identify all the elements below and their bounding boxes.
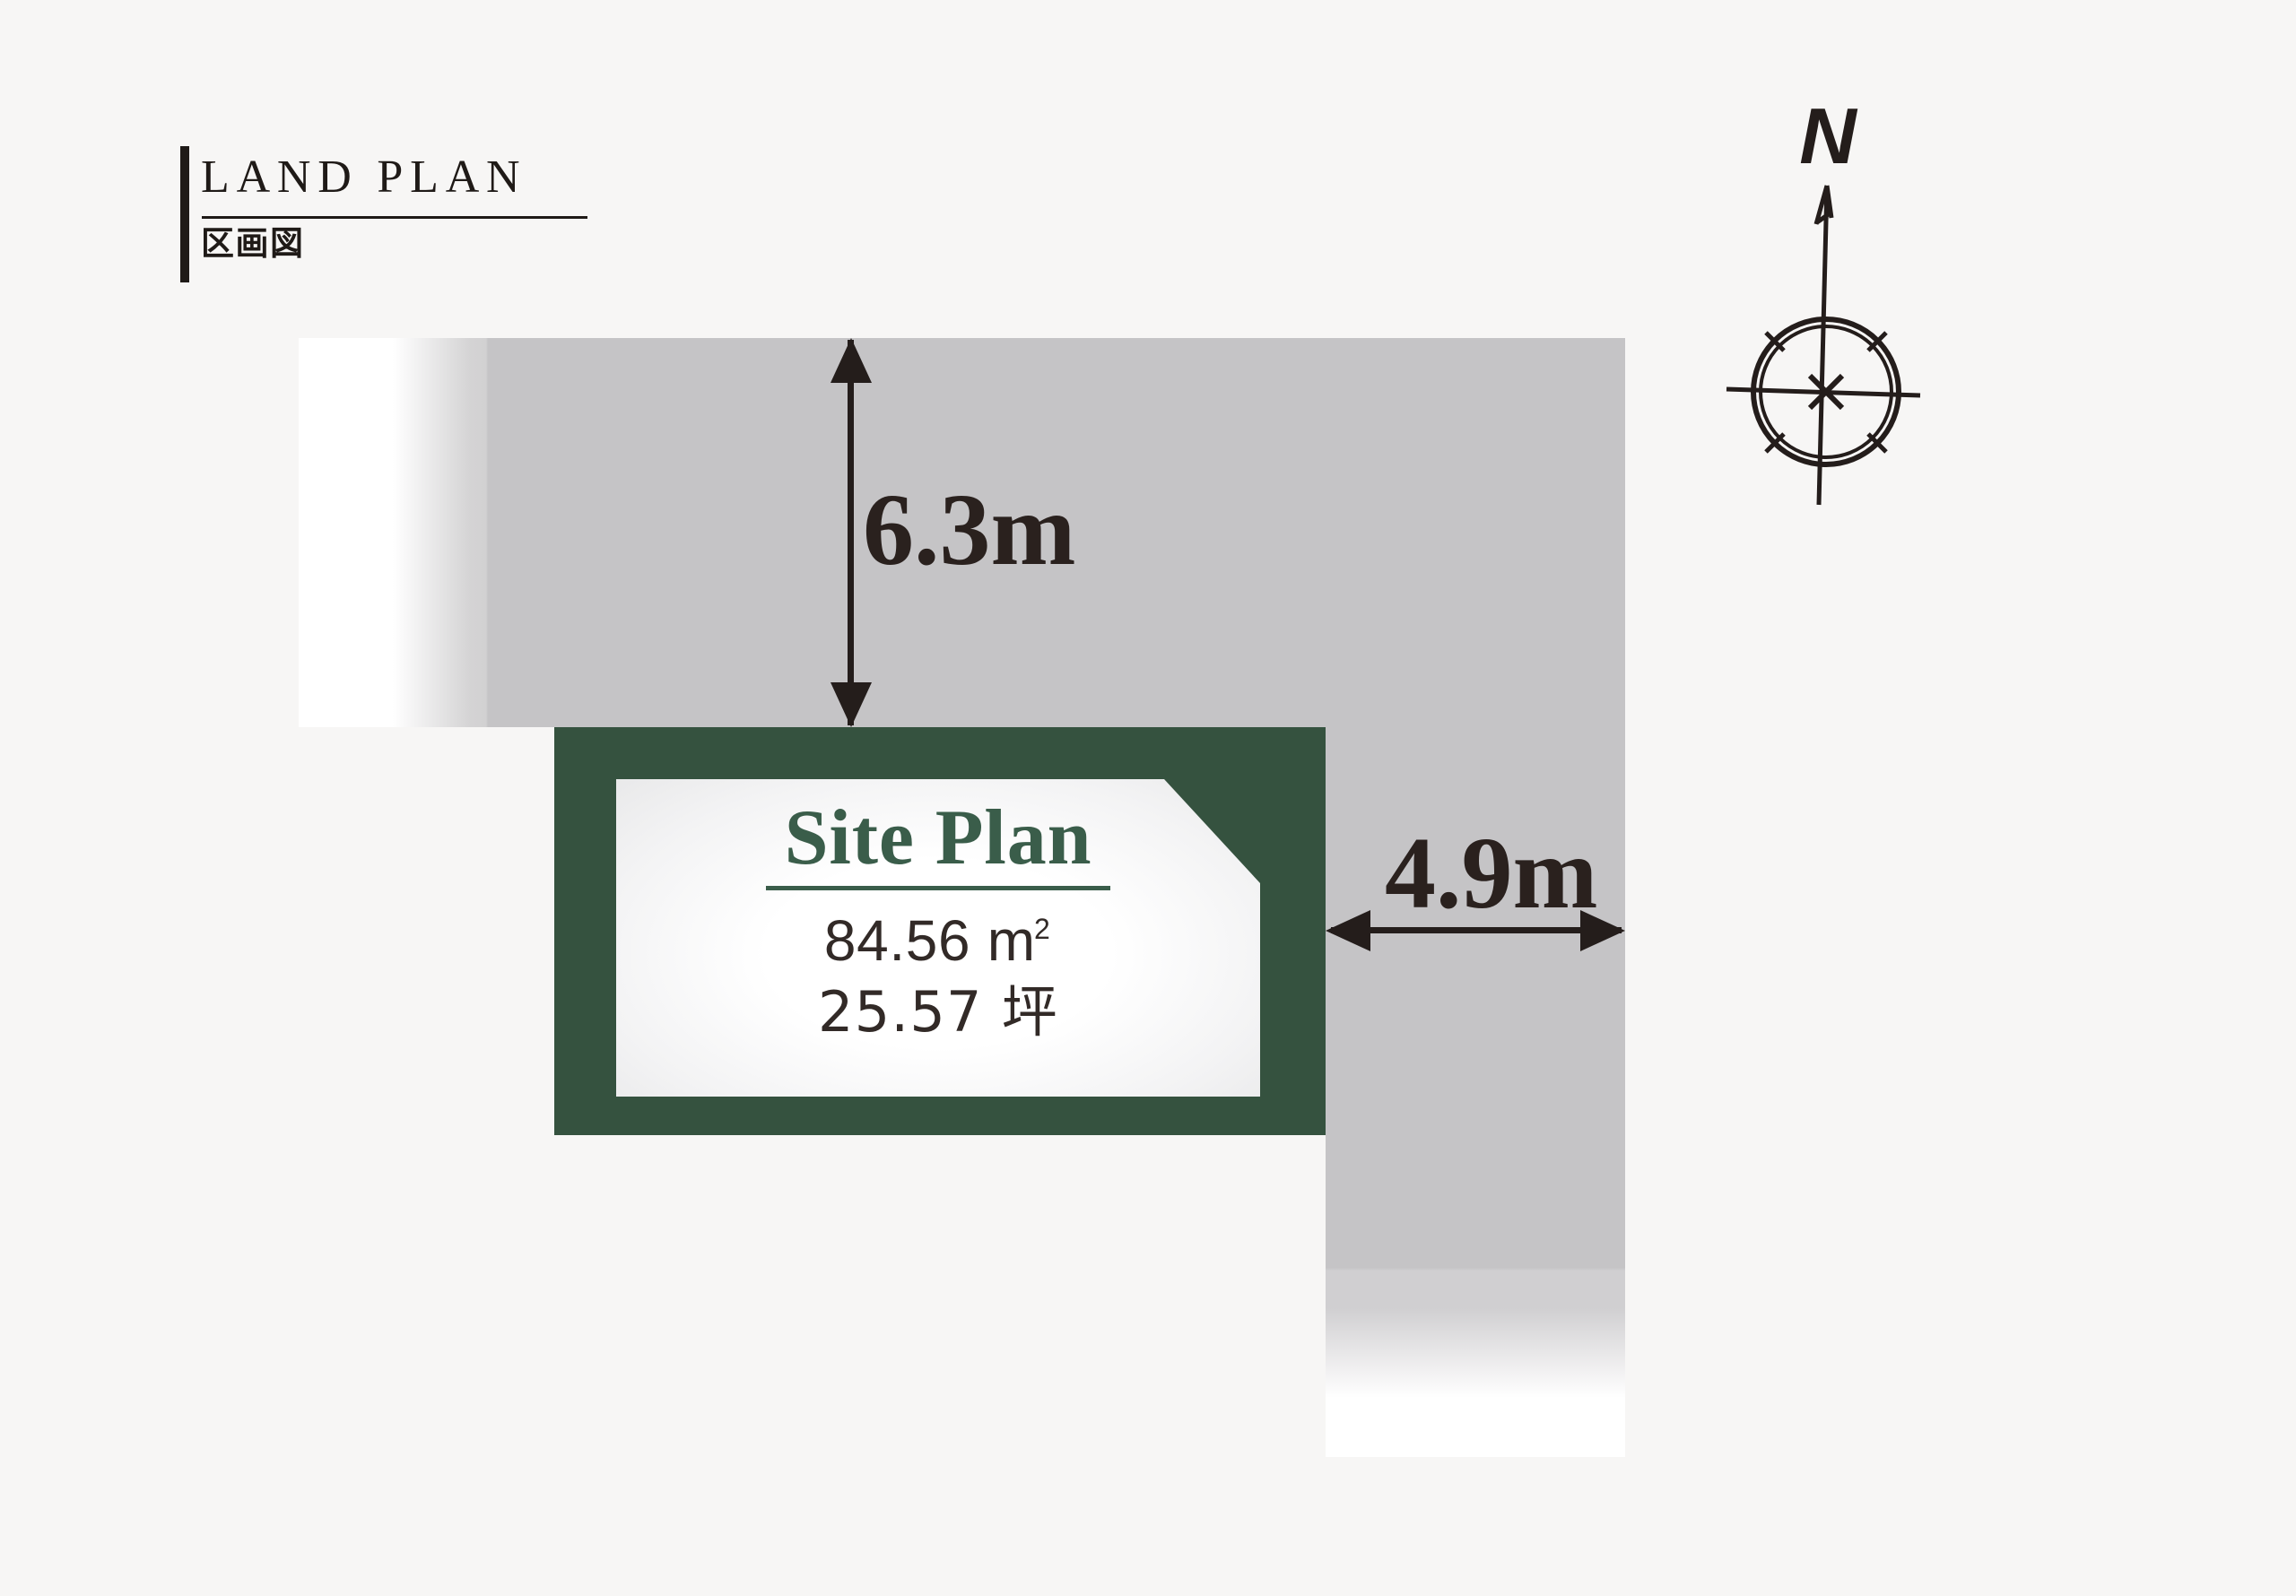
- dimension-line-vertical: [848, 340, 854, 725]
- page-subtitle: 区画図: [201, 227, 304, 260]
- dimension-label-top-road: 6.3m: [863, 479, 1075, 581]
- site-area-unit-exponent: 2: [1034, 913, 1050, 945]
- land-plan-canvas: LAND PLAN 区画図 Site Plan 84.56 m2 25.57 坪…: [0, 0, 2296, 1596]
- site-area-unit: m: [987, 908, 1036, 973]
- site-area-tsubo: 25.57 坪: [818, 984, 1058, 1040]
- arrow-left-icon: [1326, 910, 1370, 951]
- dimension-label-side-road: 4.9m: [1385, 822, 1597, 924]
- site-area-value: 84.56: [824, 908, 970, 973]
- arrow-up-icon: [831, 338, 872, 383]
- site-area-m2: 84.56 m2: [824, 912, 1052, 969]
- title-underline: [202, 216, 587, 219]
- compass-north-label: N: [1799, 91, 1858, 180]
- site-plot-panel: Site Plan 84.56 m2 25.57 坪: [616, 779, 1260, 1097]
- site-plot-title: Site Plan: [785, 799, 1092, 878]
- arrow-down-icon: [831, 682, 872, 727]
- site-plot-title-rule: [766, 886, 1110, 890]
- compass-rose-icon: N: [1711, 88, 1953, 536]
- title-accent-bar: [180, 146, 189, 282]
- page-title: LAND PLAN: [201, 154, 526, 201]
